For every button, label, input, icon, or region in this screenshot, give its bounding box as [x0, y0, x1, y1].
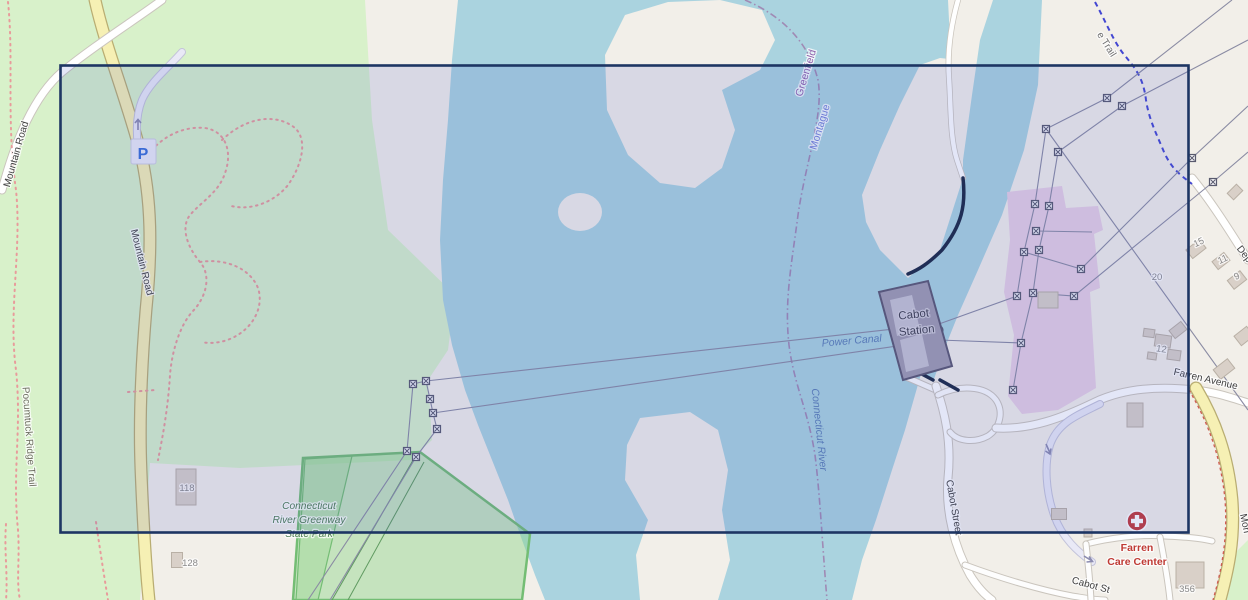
- power-pylon-icon: [1210, 179, 1217, 186]
- selection-rectangle[interactable]: [61, 66, 1189, 533]
- housenumber-128: 128: [182, 558, 198, 569]
- care-center-label-line1: Farren: [1121, 542, 1154, 554]
- care-center-label-line2: Care Center: [1107, 556, 1167, 568]
- map-viewport[interactable]: Mountain Road Mountain Road Pocumtuck Ri…: [0, 0, 1248, 600]
- housenumber-356: 356: [1179, 584, 1195, 595]
- map-canvas[interactable]: Mountain Road Mountain Road Pocumtuck Ri…: [0, 0, 1248, 600]
- building: [172, 553, 183, 568]
